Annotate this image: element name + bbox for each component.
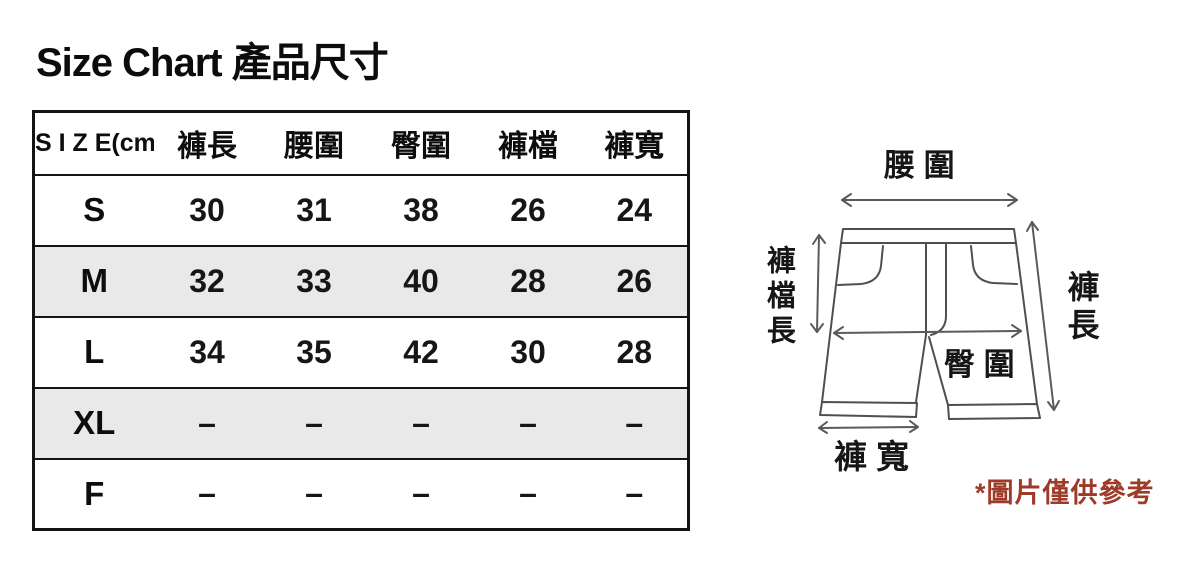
size-cell: L [34,317,154,388]
size-table: S I Z E(cm) 褲長 腰圍 臀圍 褲檔 褲寬 S 30 31 38 26… [32,110,690,531]
value-cell: 32 [154,246,261,317]
column-header-crotch: 褲檔 [475,112,582,175]
size-header-cell: S I Z E(cm) [34,112,154,175]
crotch-length-label: 褲檔長 [762,245,793,350]
table-row-l: L 34 35 42 30 28 [34,317,689,388]
value-cell: – [582,459,689,530]
column-header-leg-width: 褲寬 [582,112,689,175]
value-cell: – [368,459,475,530]
crotch-length-arrow [811,235,825,332]
leg-width-label: 褲 寬 [834,439,909,475]
value-cell: 28 [475,246,582,317]
waist-arrow [842,194,1017,206]
column-header-pant-length: 褲長 [154,112,261,175]
value-cell: 30 [154,175,261,246]
table-header-row: S I Z E(cm) 褲長 腰圍 臀圍 褲檔 褲寬 [34,112,689,175]
value-cell: – [154,459,261,530]
shorts-diagram-drawing [740,120,1200,520]
value-cell: – [154,388,261,459]
value-cell: – [475,459,582,530]
value-cell: 38 [368,175,475,246]
value-cell: – [261,388,368,459]
length-arrow [1027,222,1059,410]
value-cell: 33 [261,246,368,317]
table-row-s: S 30 31 38 26 24 [34,175,689,246]
column-header-waist: 腰圍 [261,112,368,175]
value-cell: 30 [475,317,582,388]
hip-arrow [834,325,1021,339]
value-cell: 35 [261,317,368,388]
value-cell: 24 [582,175,689,246]
size-cell: XL [34,388,154,459]
value-cell: – [368,388,475,459]
value-cell: 26 [582,246,689,317]
page-title: Size Chart 產品尺寸 [36,30,388,88]
value-cell: 26 [475,175,582,246]
value-cell: 40 [368,246,475,317]
leg-width-arrow [819,421,918,433]
size-cell: F [34,459,154,530]
waist-label: 腰 圍 [884,149,955,182]
value-cell: 28 [582,317,689,388]
column-header-hip: 臀圍 [368,112,475,175]
shorts-outline [820,229,1040,419]
pant-length-label: 褲長 [1064,270,1099,346]
value-cell: – [261,459,368,530]
table-row-m: M 32 33 40 28 26 [34,246,689,317]
size-cell: M [34,246,154,317]
table-row-xl: XL – – – – – [34,388,689,459]
reference-note: *圖片僅供參考 [975,471,1155,510]
hip-label: 臀 圍 [944,348,1015,381]
size-cell: S [34,175,154,246]
value-cell: 42 [368,317,475,388]
value-cell: 34 [154,317,261,388]
table-row-f: F – – – – – [34,459,689,530]
value-cell: – [475,388,582,459]
value-cell: – [582,388,689,459]
value-cell: 31 [261,175,368,246]
